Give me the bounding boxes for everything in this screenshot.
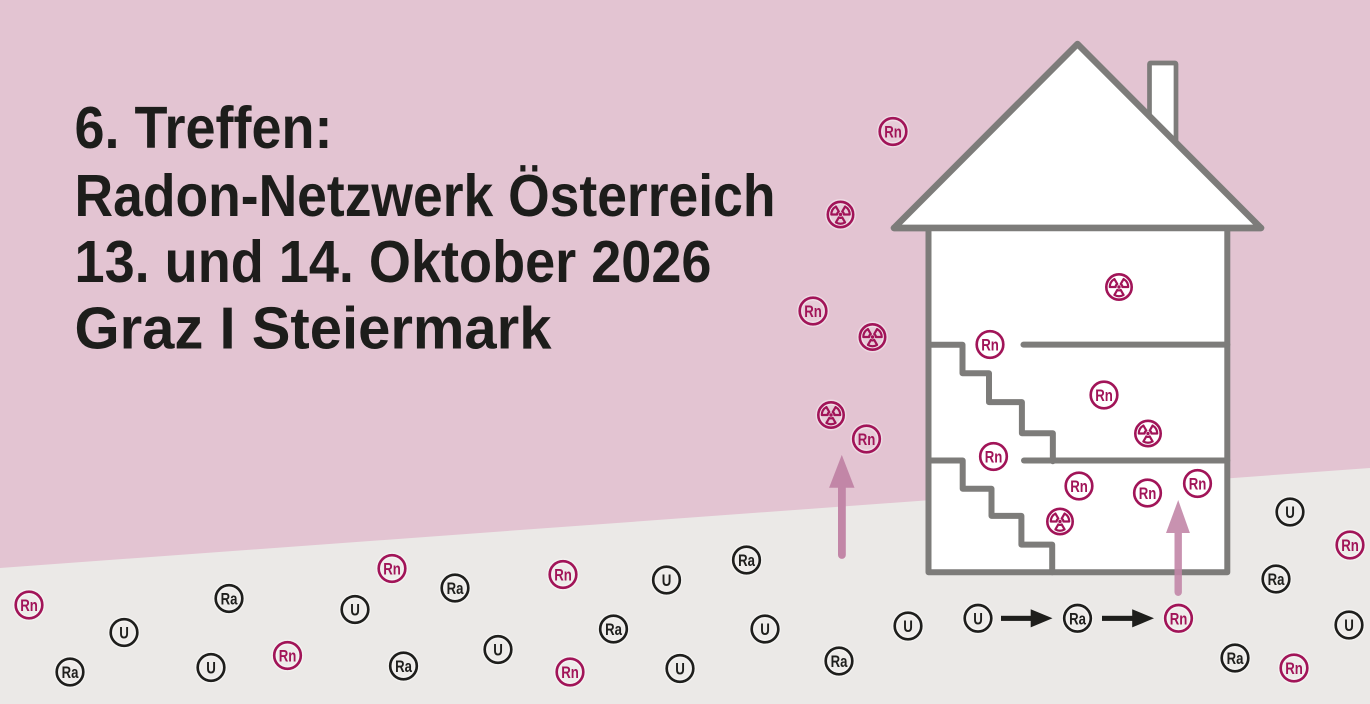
svg-text:U: U	[675, 660, 685, 679]
svg-text:Ra: Ra	[221, 590, 238, 609]
svg-text:Ra: Ra	[1069, 609, 1086, 628]
svg-text:Rn: Rn	[1189, 475, 1207, 494]
svg-text:Rn: Rn	[981, 336, 999, 355]
svg-text:Rn: Rn	[561, 663, 579, 682]
svg-text:13. und 14. Oktober 2026: 13. und 14. Oktober 2026	[75, 229, 712, 295]
svg-text:6. Treffen:: 6. Treffen:	[75, 95, 333, 161]
svg-text:U: U	[119, 624, 129, 643]
svg-text:Rn: Rn	[1095, 386, 1113, 405]
svg-text:U: U	[1344, 616, 1354, 635]
svg-text:Rn: Rn	[1139, 484, 1157, 503]
svg-text:Rn: Rn	[383, 560, 401, 579]
svg-text:Rn: Rn	[1341, 536, 1359, 555]
svg-text:Rn: Rn	[985, 448, 1003, 467]
svg-text:Rn: Rn	[279, 647, 297, 666]
svg-text:U: U	[1285, 503, 1295, 522]
svg-text:Rn: Rn	[554, 566, 572, 585]
svg-text:Ra: Ra	[447, 579, 464, 598]
svg-text:Rn: Rn	[20, 596, 38, 615]
svg-text:Graz I Steiermark: Graz I Steiermark	[75, 295, 552, 361]
svg-text:U: U	[760, 620, 770, 639]
svg-text:U: U	[493, 641, 503, 660]
svg-text:Ra: Ra	[738, 551, 755, 570]
svg-text:Ra: Ra	[1227, 649, 1244, 668]
svg-text:Ra: Ra	[605, 620, 622, 639]
svg-text:Rn: Rn	[1070, 477, 1088, 496]
svg-text:Ra: Ra	[395, 657, 412, 676]
svg-text:Rn: Rn	[858, 430, 876, 449]
svg-text:Rn: Rn	[884, 123, 902, 142]
svg-text:U: U	[662, 571, 672, 590]
svg-text:Ra: Ra	[831, 652, 848, 671]
svg-text:Rn: Rn	[1285, 659, 1303, 678]
svg-text:Ra: Ra	[1268, 570, 1285, 589]
svg-text:Ra: Ra	[62, 663, 79, 682]
svg-text:Rn: Rn	[1170, 609, 1188, 628]
svg-text:U: U	[973, 609, 983, 628]
svg-text:U: U	[350, 601, 360, 620]
svg-text:Rn: Rn	[804, 302, 822, 321]
svg-text:U: U	[206, 659, 216, 678]
svg-text:Radon-Netzwerk Österreich: Radon-Netzwerk Österreich	[75, 163, 776, 229]
svg-text:U: U	[903, 617, 913, 636]
